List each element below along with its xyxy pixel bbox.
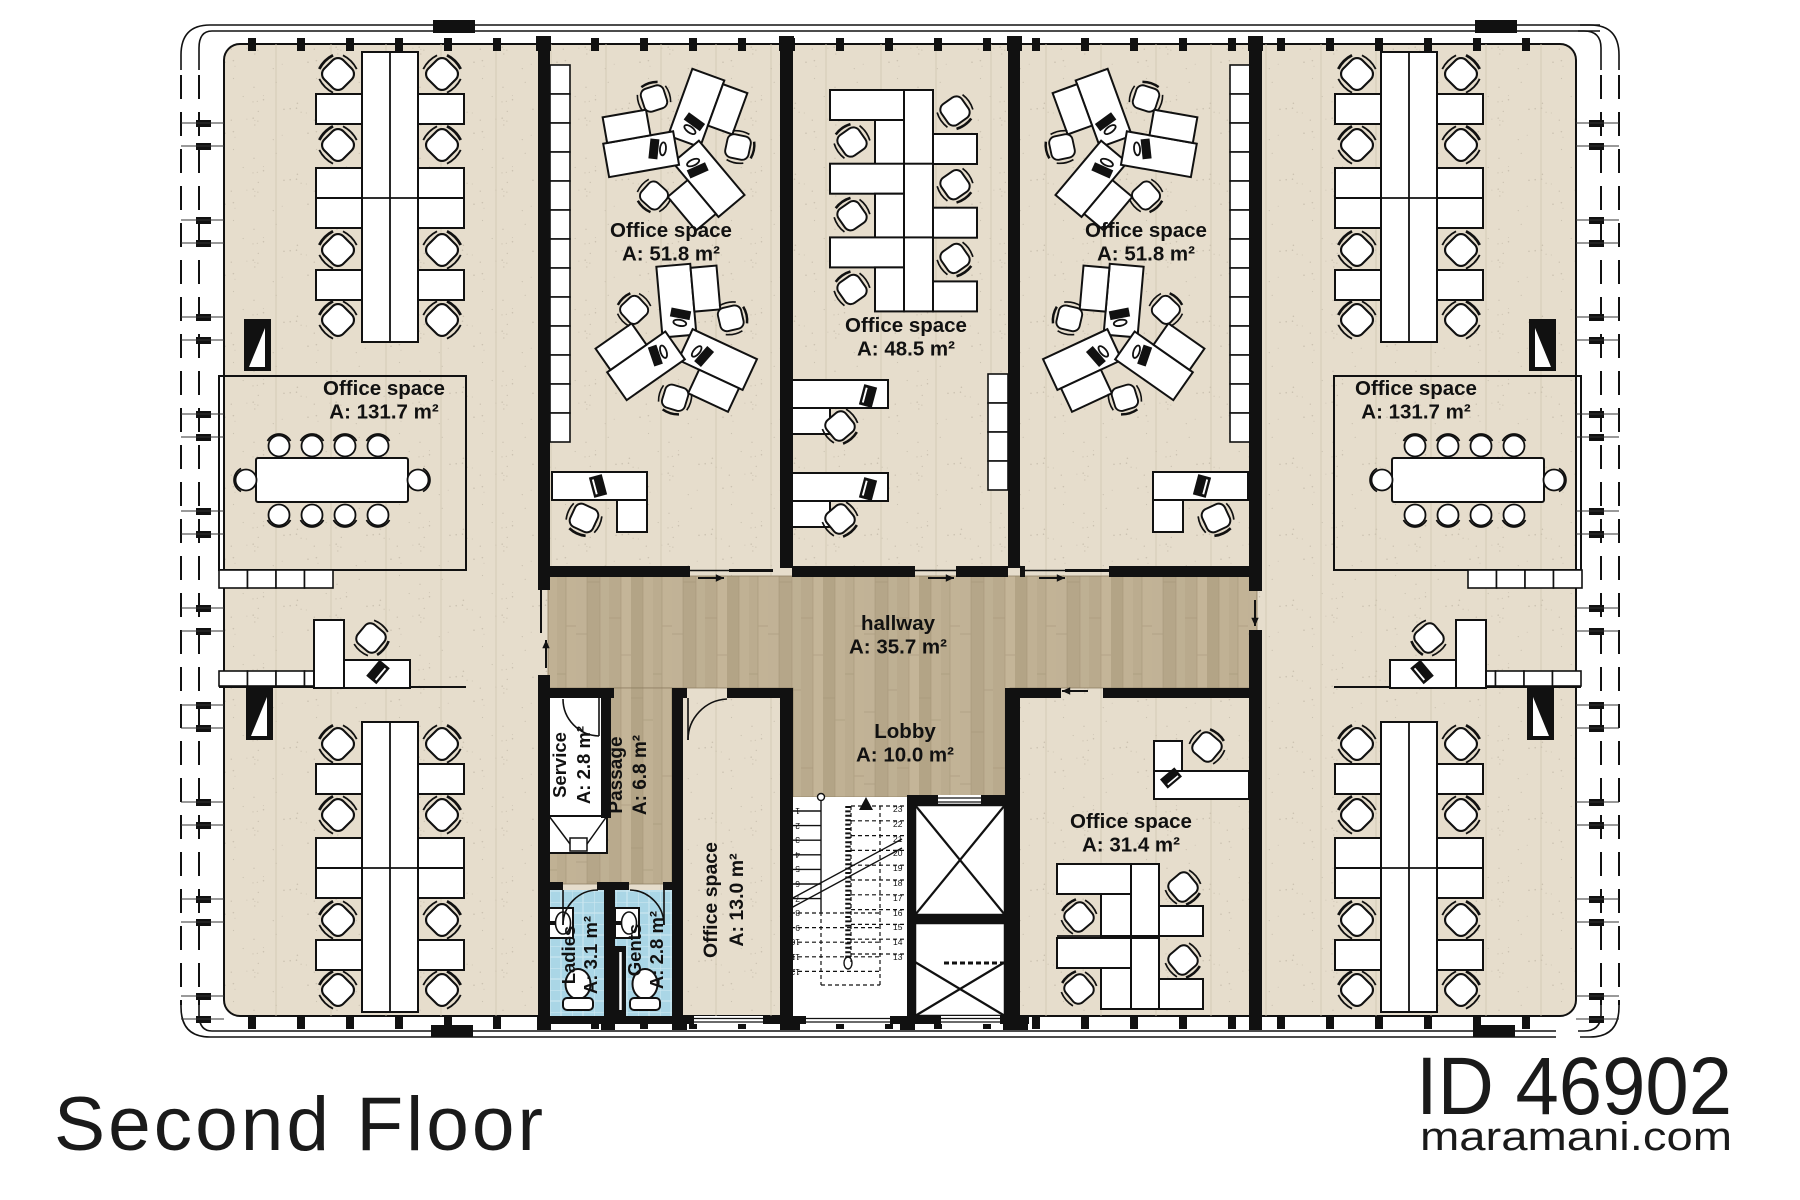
svg-text:A: 48.5 m²: A: 48.5 m² [857,338,955,361]
svg-text:19: 19 [893,863,903,873]
svg-text:Office space: Office space [1070,810,1192,833]
svg-text:Lobby: Lobby [874,720,936,743]
svg-text:maramani.com: maramani.com [1420,1115,1732,1159]
svg-text:A: 131.7 m²: A: 131.7 m² [1361,401,1471,424]
svg-text:A: 3.1 m²: A: 3.1 m² [580,916,601,994]
svg-text:Gents: Gents [624,924,645,976]
svg-text:Passage: Passage [606,736,627,813]
svg-text:Office space: Office space [1355,377,1477,400]
svg-text:A: 51.8 m²: A: 51.8 m² [1097,243,1195,266]
svg-text:hallway: hallway [861,612,936,635]
svg-text:Ladies: Ladies [558,926,579,985]
svg-text:A: 13.0 m²: A: 13.0 m² [726,853,748,947]
svg-text:A: 31.4 m²: A: 31.4 m² [1082,834,1180,857]
svg-text:A: 2.8 m²: A: 2.8 m² [573,726,594,804]
svg-text:Office space: Office space [1085,219,1207,242]
svg-text:Office space: Office space [700,842,722,958]
svg-text:Office space: Office space [323,377,445,400]
svg-text:A: 35.7 m²: A: 35.7 m² [849,636,947,659]
svg-text:A: 2.8 m²: A: 2.8 m² [646,911,667,989]
svg-text:14: 14 [893,937,903,947]
svg-text:A: 131.7 m²: A: 131.7 m² [329,401,439,424]
svg-text:Office space: Office space [845,314,967,337]
svg-text:A: 10.0 m²: A: 10.0 m² [856,744,954,767]
svg-text:Office space: Office space [610,219,732,242]
svg-text:15: 15 [893,922,903,932]
svg-text:A: 6.8 m²: A: 6.8 m² [630,735,651,815]
svg-text:Second Floor: Second Floor [54,1082,546,1167]
svg-text:Service: Service [549,732,570,798]
svg-text:A: 51.8 m²: A: 51.8 m² [622,243,720,266]
